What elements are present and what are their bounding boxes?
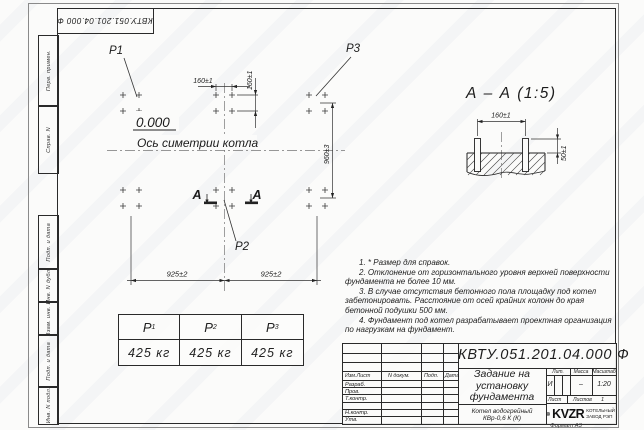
- section-cut-marks: [204, 194, 258, 203]
- notes-block: 1. * Размер для справок. 2. Отклонение о…: [345, 258, 617, 335]
- tb-col-izm-list: Изм.Лист: [345, 373, 370, 379]
- note-1: 1. * Размер для справок.: [345, 258, 617, 268]
- load-table-value-p3: 425 кг: [242, 340, 303, 365]
- tb-lit-label: Лит.: [546, 369, 570, 375]
- tb-line: [562, 375, 563, 395]
- note-4: 4. Фундамент под котел разрабатывает про…: [345, 316, 617, 335]
- tb-product-line1: Котел водогрейный: [472, 408, 533, 415]
- tb-row-razrab: Разраб.: [345, 382, 365, 388]
- tb-title-line3: фундамента: [470, 392, 535, 404]
- margin-box-perv-primen: Перв. примен.: [38, 35, 59, 107]
- tb-sheets-label: Листов: [573, 397, 592, 403]
- tb-line: [443, 344, 444, 424]
- margin-box-inv-podl: Инв. N подл.: [38, 386, 59, 425]
- section-letter-left: А: [191, 188, 201, 202]
- margin-label: Инв. N подл.: [46, 387, 52, 423]
- margin-label: Взам. инв. N: [46, 300, 52, 336]
- margin-box-sprav-n: Справ. N: [38, 105, 59, 174]
- tb-line: [343, 353, 458, 354]
- note-3: 3. В случае отсутствия бетонного пола пл…: [345, 287, 617, 316]
- company-line2: ЗАВОД РЭП: [586, 414, 615, 419]
- dim-925-left: 925±2: [167, 270, 189, 279]
- p-base: P: [266, 320, 275, 335]
- load-label-p2: P2: [235, 241, 250, 253]
- margin-label: Инв. N дубл.: [46, 268, 52, 304]
- tb-title: Задание на установку фундамента: [458, 369, 546, 404]
- tb-mass-value: –: [570, 381, 592, 388]
- tb-product-line2: КВр-0,6 К (К): [483, 415, 521, 422]
- symmetry-axis-label: Ось симетрии котла: [137, 136, 258, 150]
- tb-lit-value: И: [546, 381, 554, 388]
- section-letter-right: А: [251, 188, 261, 202]
- elevation-label: 0.000: [136, 115, 170, 130]
- load-table-value-p2: 425 кг: [180, 340, 241, 365]
- tb-row-nkontr: Н.контр.: [345, 410, 369, 416]
- tb-sheet-label: Лист: [548, 397, 561, 403]
- p-base: P: [143, 320, 152, 335]
- company-logo-block: KVZR КОТЕЛЬНЫЙ ЗАВОД РЭП: [547, 404, 615, 423]
- margin-label: Подп. и дата: [46, 342, 52, 381]
- tb-line: [343, 362, 458, 363]
- kvzr-logo-icon: [547, 408, 550, 420]
- tb-row-tkontr: Т.контр.: [345, 396, 368, 402]
- section-dim-50: 50±1: [561, 145, 568, 161]
- margin-box-inv-dubl: Инв. N дубл.: [38, 268, 59, 303]
- tb-scale-value: 1:20: [592, 381, 616, 388]
- tb-line: [381, 344, 382, 424]
- load-label-p1: P1: [109, 45, 123, 57]
- drawing-sheet: P1 P3 P2 0.000 Ось симетрии котла 160±1 …: [0, 0, 644, 430]
- p-sub: 2: [213, 324, 217, 331]
- logo-text: KVZR: [552, 407, 584, 421]
- top-document-stamp-text: КВТУ.051.201.04.000 Ф: [57, 16, 153, 25]
- tb-doc-number: КВТУ.051.201.04.000 Ф: [458, 347, 616, 363]
- margin-box-podp-data-2: Подп. и дата: [38, 334, 59, 388]
- tb-mass-label: Масса: [570, 369, 592, 375]
- load-table: P1 P2 P3 425 кг 425 кг 425 кг: [118, 314, 304, 366]
- dim-960: 960±3: [324, 144, 331, 164]
- p-sub: 1: [152, 324, 156, 331]
- margin-label: Справ. N: [46, 127, 52, 153]
- top-document-stamp: КВТУ.051.201.04.000 Ф: [57, 8, 154, 34]
- section-title: А – А (1:5): [465, 85, 557, 102]
- margin-box-vzam-inv: Взам. инв. N: [38, 301, 59, 336]
- load-label-p3: P3: [346, 43, 361, 55]
- load-table-header-p1: P1: [119, 315, 180, 340]
- p-base: P: [204, 320, 213, 335]
- tb-col-n-dokum: N докум.: [388, 373, 410, 379]
- section-dim-160: 160±1: [491, 113, 511, 120]
- tb-line: [343, 402, 458, 403]
- tb-row-prov: Пров.: [345, 389, 360, 395]
- tb-scale-label: Масштаб: [592, 369, 616, 375]
- tb-line: [567, 395, 568, 403]
- tb-row-utv: Утв.: [345, 417, 358, 423]
- load-table-header-p3: P3: [242, 315, 303, 340]
- margin-label: Перв. примен.: [46, 50, 52, 91]
- tb-col-podp: Подп.: [424, 373, 438, 379]
- tb-line: [554, 375, 555, 395]
- dimension-lines: [127, 78, 561, 285]
- tb-line: [343, 416, 458, 417]
- p-sub: 3: [275, 324, 279, 331]
- dim-160-horizontal: 160±1: [193, 78, 213, 85]
- margin-label: Подп. и дата: [46, 223, 52, 262]
- note-2: 2. Отклонение от горизонтального уровня …: [345, 268, 617, 287]
- company-name: КОТЕЛЬНЫЙ ЗАВОД РЭП: [586, 408, 615, 418]
- tb-sheets-value: 1: [601, 397, 604, 403]
- format-label: Формат А3: [530, 423, 602, 429]
- tb-line: [546, 375, 616, 376]
- tb-product: Котел водогрейный КВр-0,6 К (К): [458, 405, 546, 424]
- title-block: Изм.Лист N докум. Подп. Дата Разраб. Про…: [342, 343, 617, 425]
- dim-160-vertical: 160±1: [247, 70, 254, 90]
- load-table-value-p1: 425 кг: [119, 340, 180, 365]
- margin-box-podp-data-1: Подп. и дата: [38, 215, 59, 270]
- load-table-header-p2: P2: [180, 315, 241, 340]
- tb-line: [421, 344, 422, 424]
- dim-925-right: 925±2: [261, 270, 283, 279]
